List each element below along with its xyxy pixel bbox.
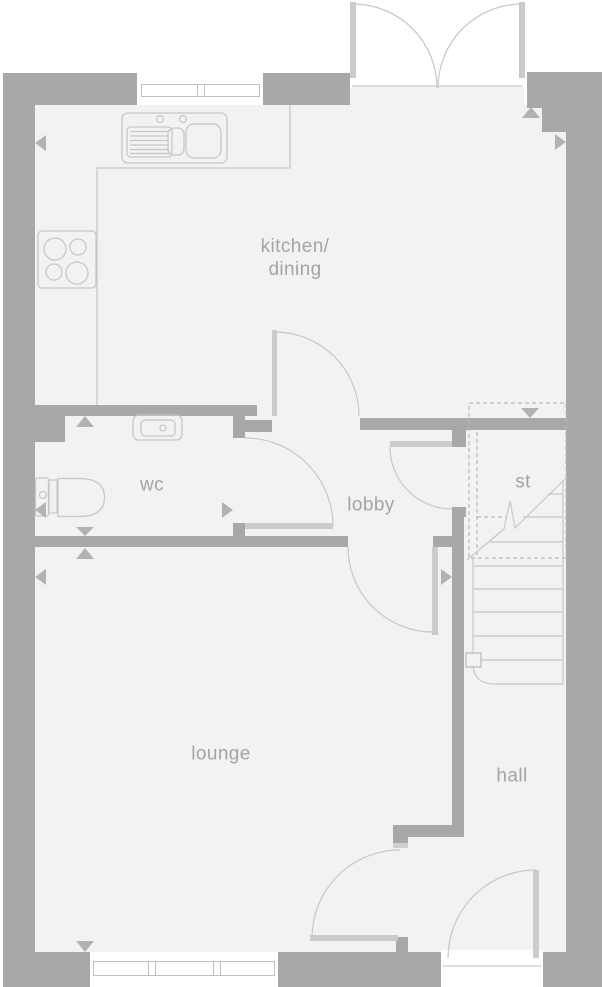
marker-right-kitchen [555,134,566,150]
lounge-door-leaf [432,547,438,635]
hob-icon [38,231,96,288]
french-door-leaf-right [519,2,525,78]
label-kitchen-line2: dining [261,258,330,281]
dimension-markers [35,107,566,952]
staircase [466,403,567,684]
french-door-arc-right [438,4,522,88]
lounge-hall-door-arc [312,850,400,938]
marker-up-top-right [522,107,540,118]
lobby-hall-door-arc [390,447,452,509]
french-door-leaf-left [350,2,356,78]
label-kitchen-line1: kitchen/ [261,235,330,258]
marker-up-lounge-top [76,548,94,559]
marker-left-kitchen [35,135,46,151]
newel-post [466,653,481,667]
label-lounge: lounge [191,743,250,766]
label-wc: wc [140,474,164,497]
kitchen-door-arc [275,332,359,416]
stair-treads [473,566,563,660]
french-door-arc-left [353,4,437,88]
plan-linework [0,0,602,987]
label-kitchen-dining: kitchen/ dining [261,235,330,281]
stair-bullnose [473,665,563,684]
sink-icon [122,113,227,163]
lounge-door-arc [348,547,433,632]
marker-down-wc-bottom [76,527,94,536]
basin-icon [133,415,182,440]
front-door-arc [448,870,536,958]
label-hall: hall [496,765,527,788]
marker-down-lounge-bottom [76,941,94,952]
marker-up-wc-top [76,416,94,427]
lounge-hall-door-leaf [310,935,398,941]
front-door-leaf [533,870,539,958]
marker-right-wc [222,502,233,518]
kitchen-door-leaf [272,330,277,416]
marker-right-lounge [441,569,452,585]
marker-down-stairs [521,408,539,418]
marker-left-lounge [35,569,46,585]
floor-plan: kitchen/ dining wc lobby st lounge hall [0,0,602,987]
label-st: st [515,471,531,494]
label-lobby: lobby [347,494,394,517]
stair-treads-upper [490,494,563,542]
lobby-hall-door-leaf [390,441,452,447]
wc-door-leaf [245,523,333,529]
wc-door-arc [245,438,333,526]
